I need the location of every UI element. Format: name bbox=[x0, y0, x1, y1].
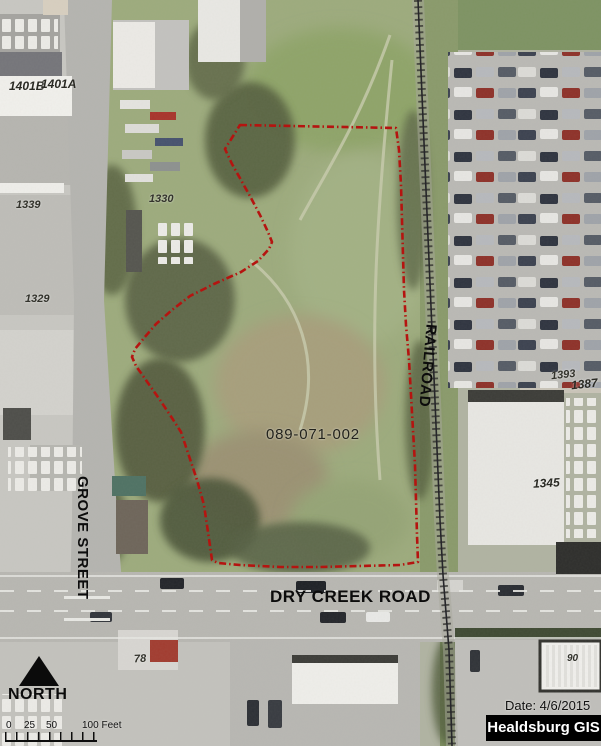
address-label-1401a: 1401A bbox=[41, 77, 76, 91]
north-arrow: NORTH bbox=[8, 656, 67, 704]
map-viewport: 1401B 1401A 1339 1330 1329 1393 1387 134… bbox=[0, 0, 601, 746]
photo-grain bbox=[0, 0, 601, 746]
scale-tick-100: 100 Feet bbox=[82, 720, 121, 731]
address-label-1329: 1329 bbox=[25, 293, 49, 305]
address-label-1345: 1345 bbox=[533, 475, 560, 490]
address-label-1339: 1339 bbox=[16, 199, 40, 211]
address-label-78: 78 bbox=[134, 653, 147, 666]
north-arrow-icon bbox=[19, 656, 59, 686]
map-date: Date: 4/6/2015 bbox=[505, 698, 590, 713]
address-label-1387: 1387 bbox=[570, 376, 598, 393]
street-label-dry-creek: DRY CREEK ROAD bbox=[270, 587, 431, 607]
aerial-imagery bbox=[0, 0, 601, 746]
scale-tick-0: 0 bbox=[6, 720, 12, 731]
address-label-90: 90 bbox=[567, 653, 578, 664]
north-label: NORTH bbox=[8, 686, 67, 704]
parcel-number-label: 089-071-002 bbox=[266, 426, 360, 443]
street-label-grove: GROVE STREET bbox=[74, 476, 91, 600]
scale-bar bbox=[5, 732, 97, 742]
scale-tick-50: 50 bbox=[46, 720, 57, 731]
attribution-badge: Healdsburg GIS bbox=[486, 715, 601, 741]
address-label-1330: 1330 bbox=[149, 193, 173, 205]
scale-tick-25: 25 bbox=[24, 720, 35, 731]
address-label-1401b: 1401B bbox=[9, 79, 44, 93]
